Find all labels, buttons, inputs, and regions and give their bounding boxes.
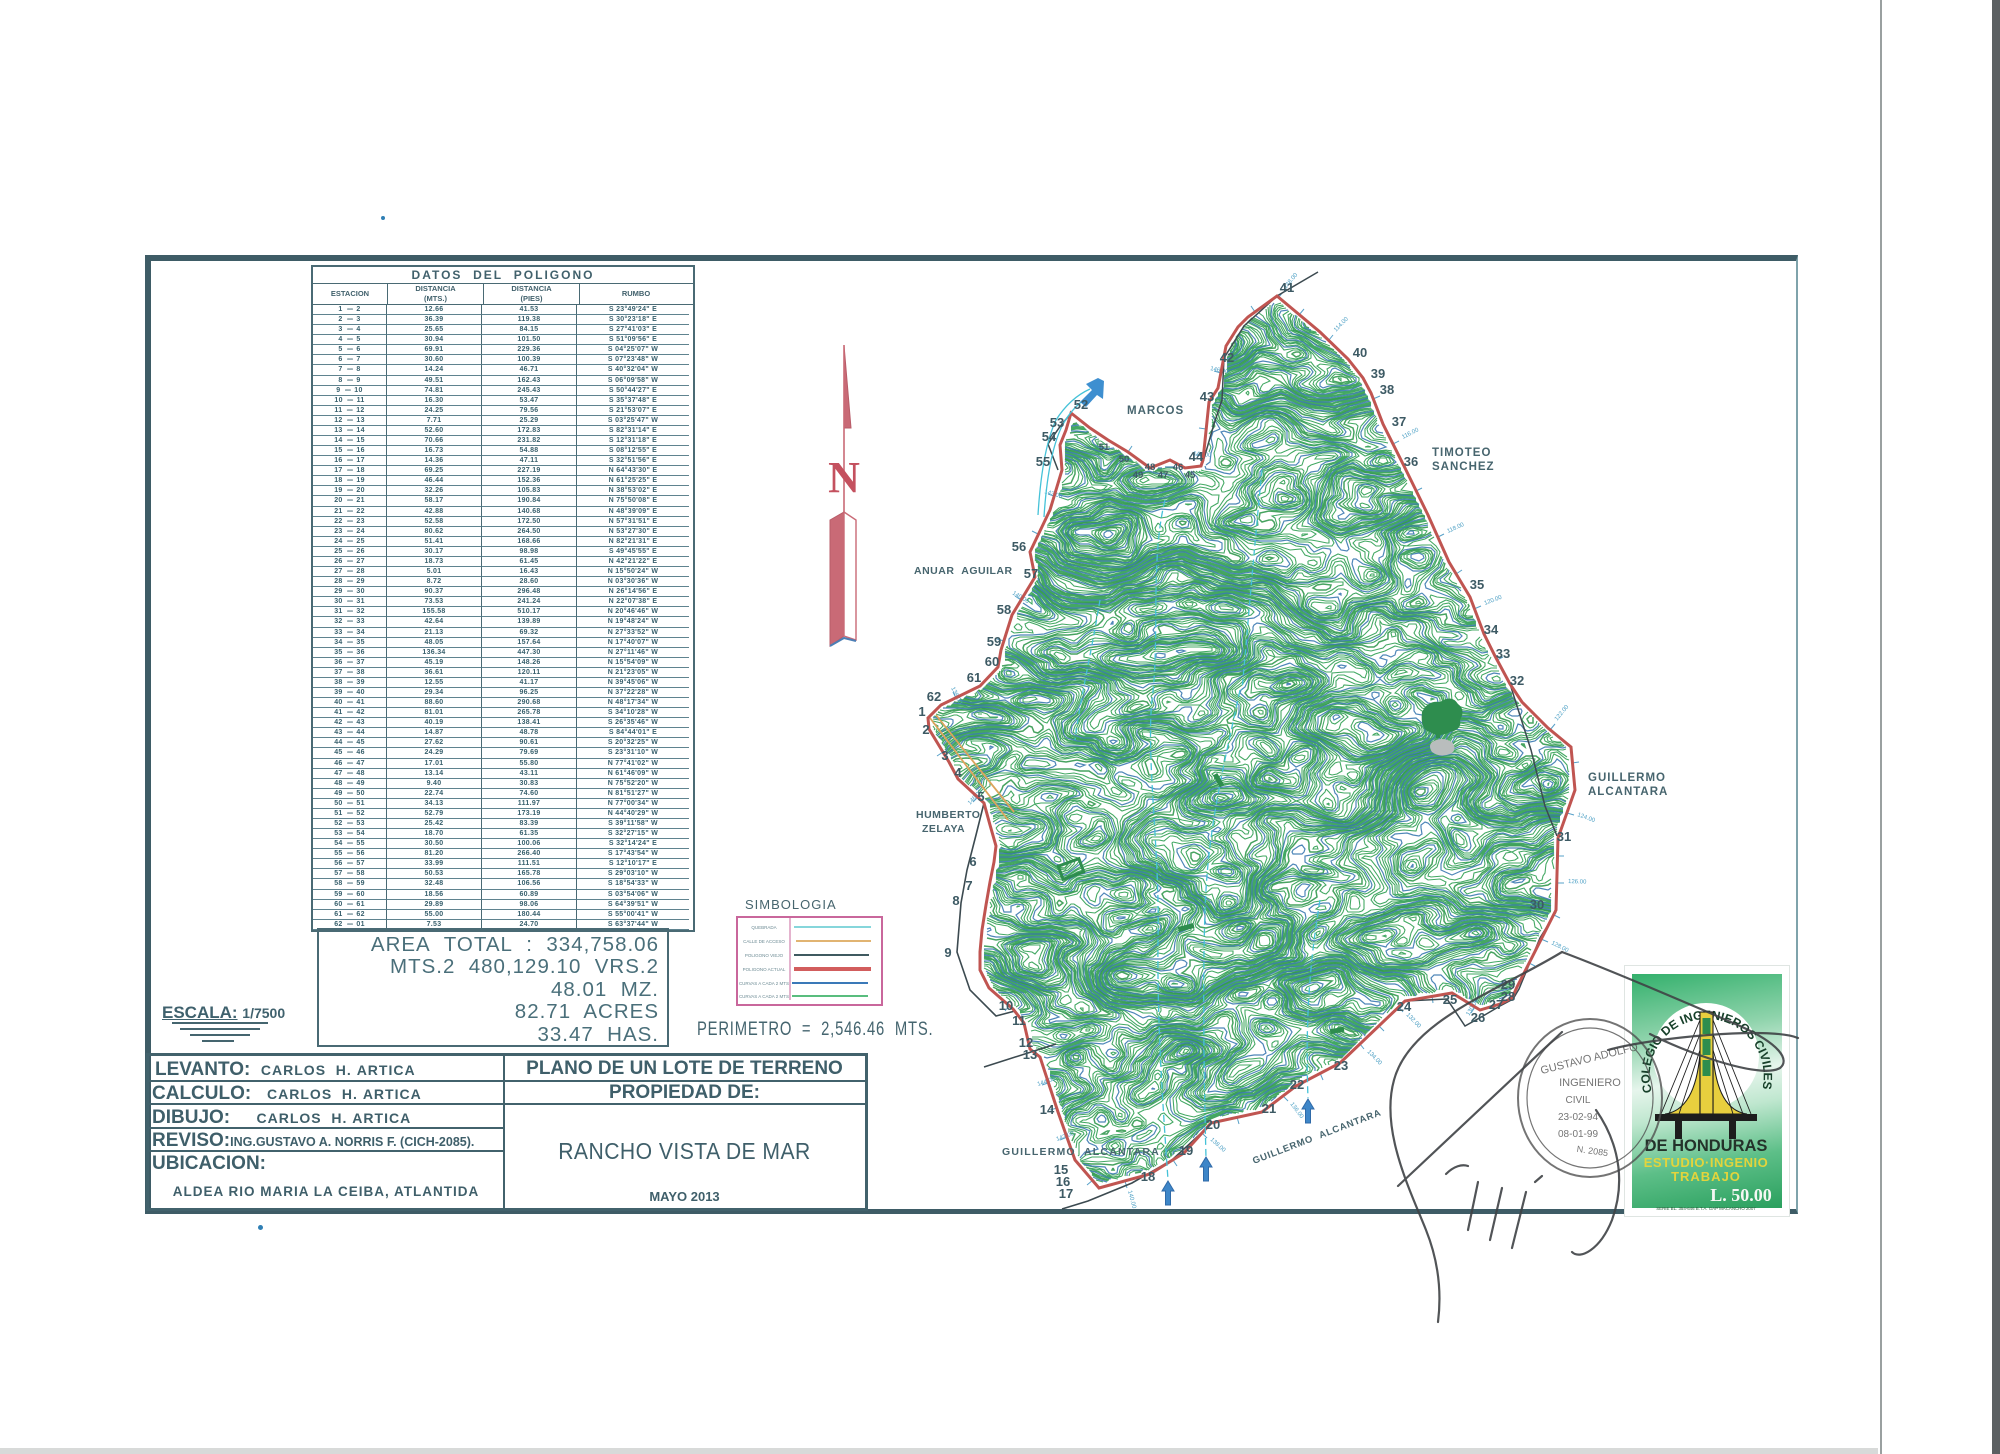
svg-text:60: 60 xyxy=(985,654,999,669)
svg-text:2: 2 xyxy=(922,722,929,737)
svg-text:30: 30 xyxy=(1530,897,1544,912)
svg-text:44: 44 xyxy=(1189,449,1204,464)
svg-text:48: 48 xyxy=(1145,462,1156,473)
svg-text:21: 21 xyxy=(1262,1101,1276,1116)
svg-text:52: 52 xyxy=(1074,397,1088,412)
svg-text:12: 12 xyxy=(1019,1035,1033,1050)
svg-text:23: 23 xyxy=(1334,1058,1348,1073)
svg-text:42: 42 xyxy=(1220,350,1234,365)
svg-text:7: 7 xyxy=(965,878,972,893)
svg-text:GUILLERMO: GUILLERMO xyxy=(1588,772,1666,784)
svg-text:MARCOS: MARCOS xyxy=(1127,405,1184,417)
svg-text:22: 22 xyxy=(1290,1077,1304,1092)
svg-text:138.00: 138.00 xyxy=(1209,1137,1227,1154)
svg-text:58: 58 xyxy=(997,602,1011,617)
svg-text:120.00: 120.00 xyxy=(1484,594,1504,606)
svg-text:49: 49 xyxy=(1133,470,1144,481)
svg-text:40: 40 xyxy=(1353,345,1367,360)
svg-text:114.00: 114.00 xyxy=(1333,316,1350,334)
svg-text:55: 55 xyxy=(1036,454,1050,469)
svg-text:19: 19 xyxy=(1179,1143,1193,1158)
svg-text:TIMOTEO: TIMOTEO xyxy=(1432,447,1491,459)
svg-text:18: 18 xyxy=(1141,1169,1155,1184)
svg-text:20: 20 xyxy=(1206,1117,1220,1132)
svg-text:50: 50 xyxy=(1119,454,1130,465)
svg-text:SANCHEZ: SANCHEZ xyxy=(1432,461,1495,473)
svg-text:6: 6 xyxy=(969,854,976,869)
svg-text:9: 9 xyxy=(944,945,951,960)
svg-text:62: 62 xyxy=(927,689,941,704)
svg-text:32: 32 xyxy=(1510,673,1524,688)
svg-text:ZELAYA: ZELAYA xyxy=(922,823,965,835)
svg-text:43: 43 xyxy=(1200,389,1214,404)
svg-text:33: 33 xyxy=(1496,646,1510,661)
svg-text:56: 56 xyxy=(1012,539,1026,554)
svg-text:ANUAR AGUILAR: ANUAR AGUILAR xyxy=(914,565,1013,577)
svg-text:31: 31 xyxy=(1557,829,1571,844)
svg-text:36: 36 xyxy=(1404,454,1418,469)
svg-text:35: 35 xyxy=(1470,577,1484,592)
svg-text:38: 38 xyxy=(1380,382,1394,397)
svg-text:59: 59 xyxy=(987,634,1001,649)
svg-text:11: 11 xyxy=(1012,1013,1026,1028)
svg-text:3: 3 xyxy=(941,748,948,763)
svg-text:51: 51 xyxy=(1099,442,1110,453)
svg-text:118.00: 118.00 xyxy=(1446,522,1465,535)
svg-text:136.00: 136.00 xyxy=(1288,1102,1304,1121)
svg-text:57: 57 xyxy=(1024,566,1038,581)
svg-text:41: 41 xyxy=(1280,280,1294,295)
svg-text:14: 14 xyxy=(1040,1102,1055,1117)
svg-text:5: 5 xyxy=(977,789,984,804)
svg-text:53: 53 xyxy=(1050,415,1064,430)
svg-text:8: 8 xyxy=(952,893,959,908)
svg-text:116.00: 116.00 xyxy=(1401,427,1420,441)
svg-text:47: 47 xyxy=(1158,470,1169,481)
svg-text:126.00: 126.00 xyxy=(1568,879,1587,886)
svg-text:46: 46 xyxy=(1173,462,1184,473)
svg-text:54: 54 xyxy=(1042,429,1057,444)
svg-text:GUILLERMO ALCANTARA: GUILLERMO ALCANTARA xyxy=(1002,1146,1160,1158)
svg-text:39: 39 xyxy=(1371,366,1385,381)
svg-text:1: 1 xyxy=(918,704,925,719)
svg-text:34: 34 xyxy=(1484,622,1499,637)
svg-text:37: 37 xyxy=(1392,414,1406,429)
svg-text:140.00: 140.00 xyxy=(1126,1190,1137,1210)
svg-text:10: 10 xyxy=(999,998,1013,1013)
svg-text:122.00: 122.00 xyxy=(1554,704,1571,722)
svg-text:61: 61 xyxy=(967,670,981,685)
svg-text:HUMBERTO: HUMBERTO xyxy=(916,809,980,821)
svg-text:15: 15 xyxy=(1054,1162,1068,1177)
svg-text:45: 45 xyxy=(1185,470,1196,481)
svg-text:ALCANTARA: ALCANTARA xyxy=(1588,786,1668,798)
svg-text:4: 4 xyxy=(954,765,962,780)
svg-text:124.00: 124.00 xyxy=(1576,812,1596,824)
